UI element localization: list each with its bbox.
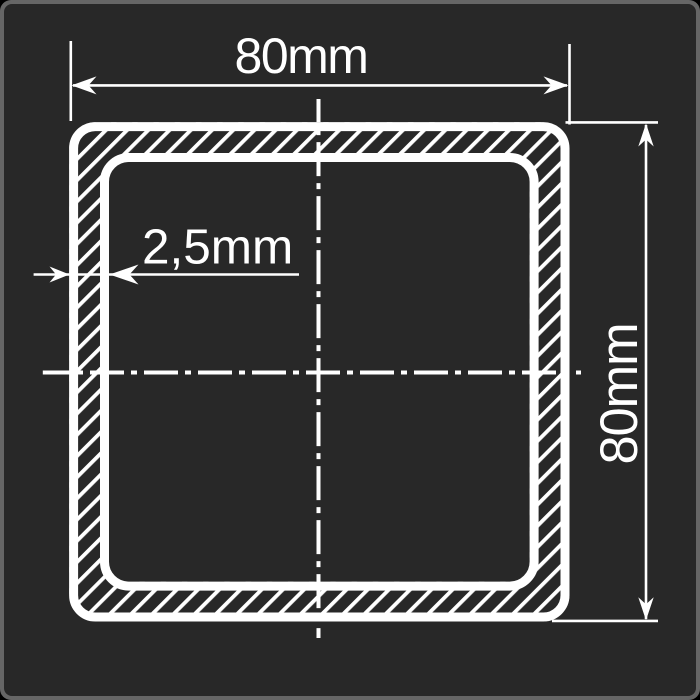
svg-text:2,5mm: 2,5mm bbox=[142, 220, 293, 275]
svg-text:80mm: 80mm bbox=[590, 323, 649, 464]
svg-text:80mm: 80mm bbox=[235, 28, 368, 84]
